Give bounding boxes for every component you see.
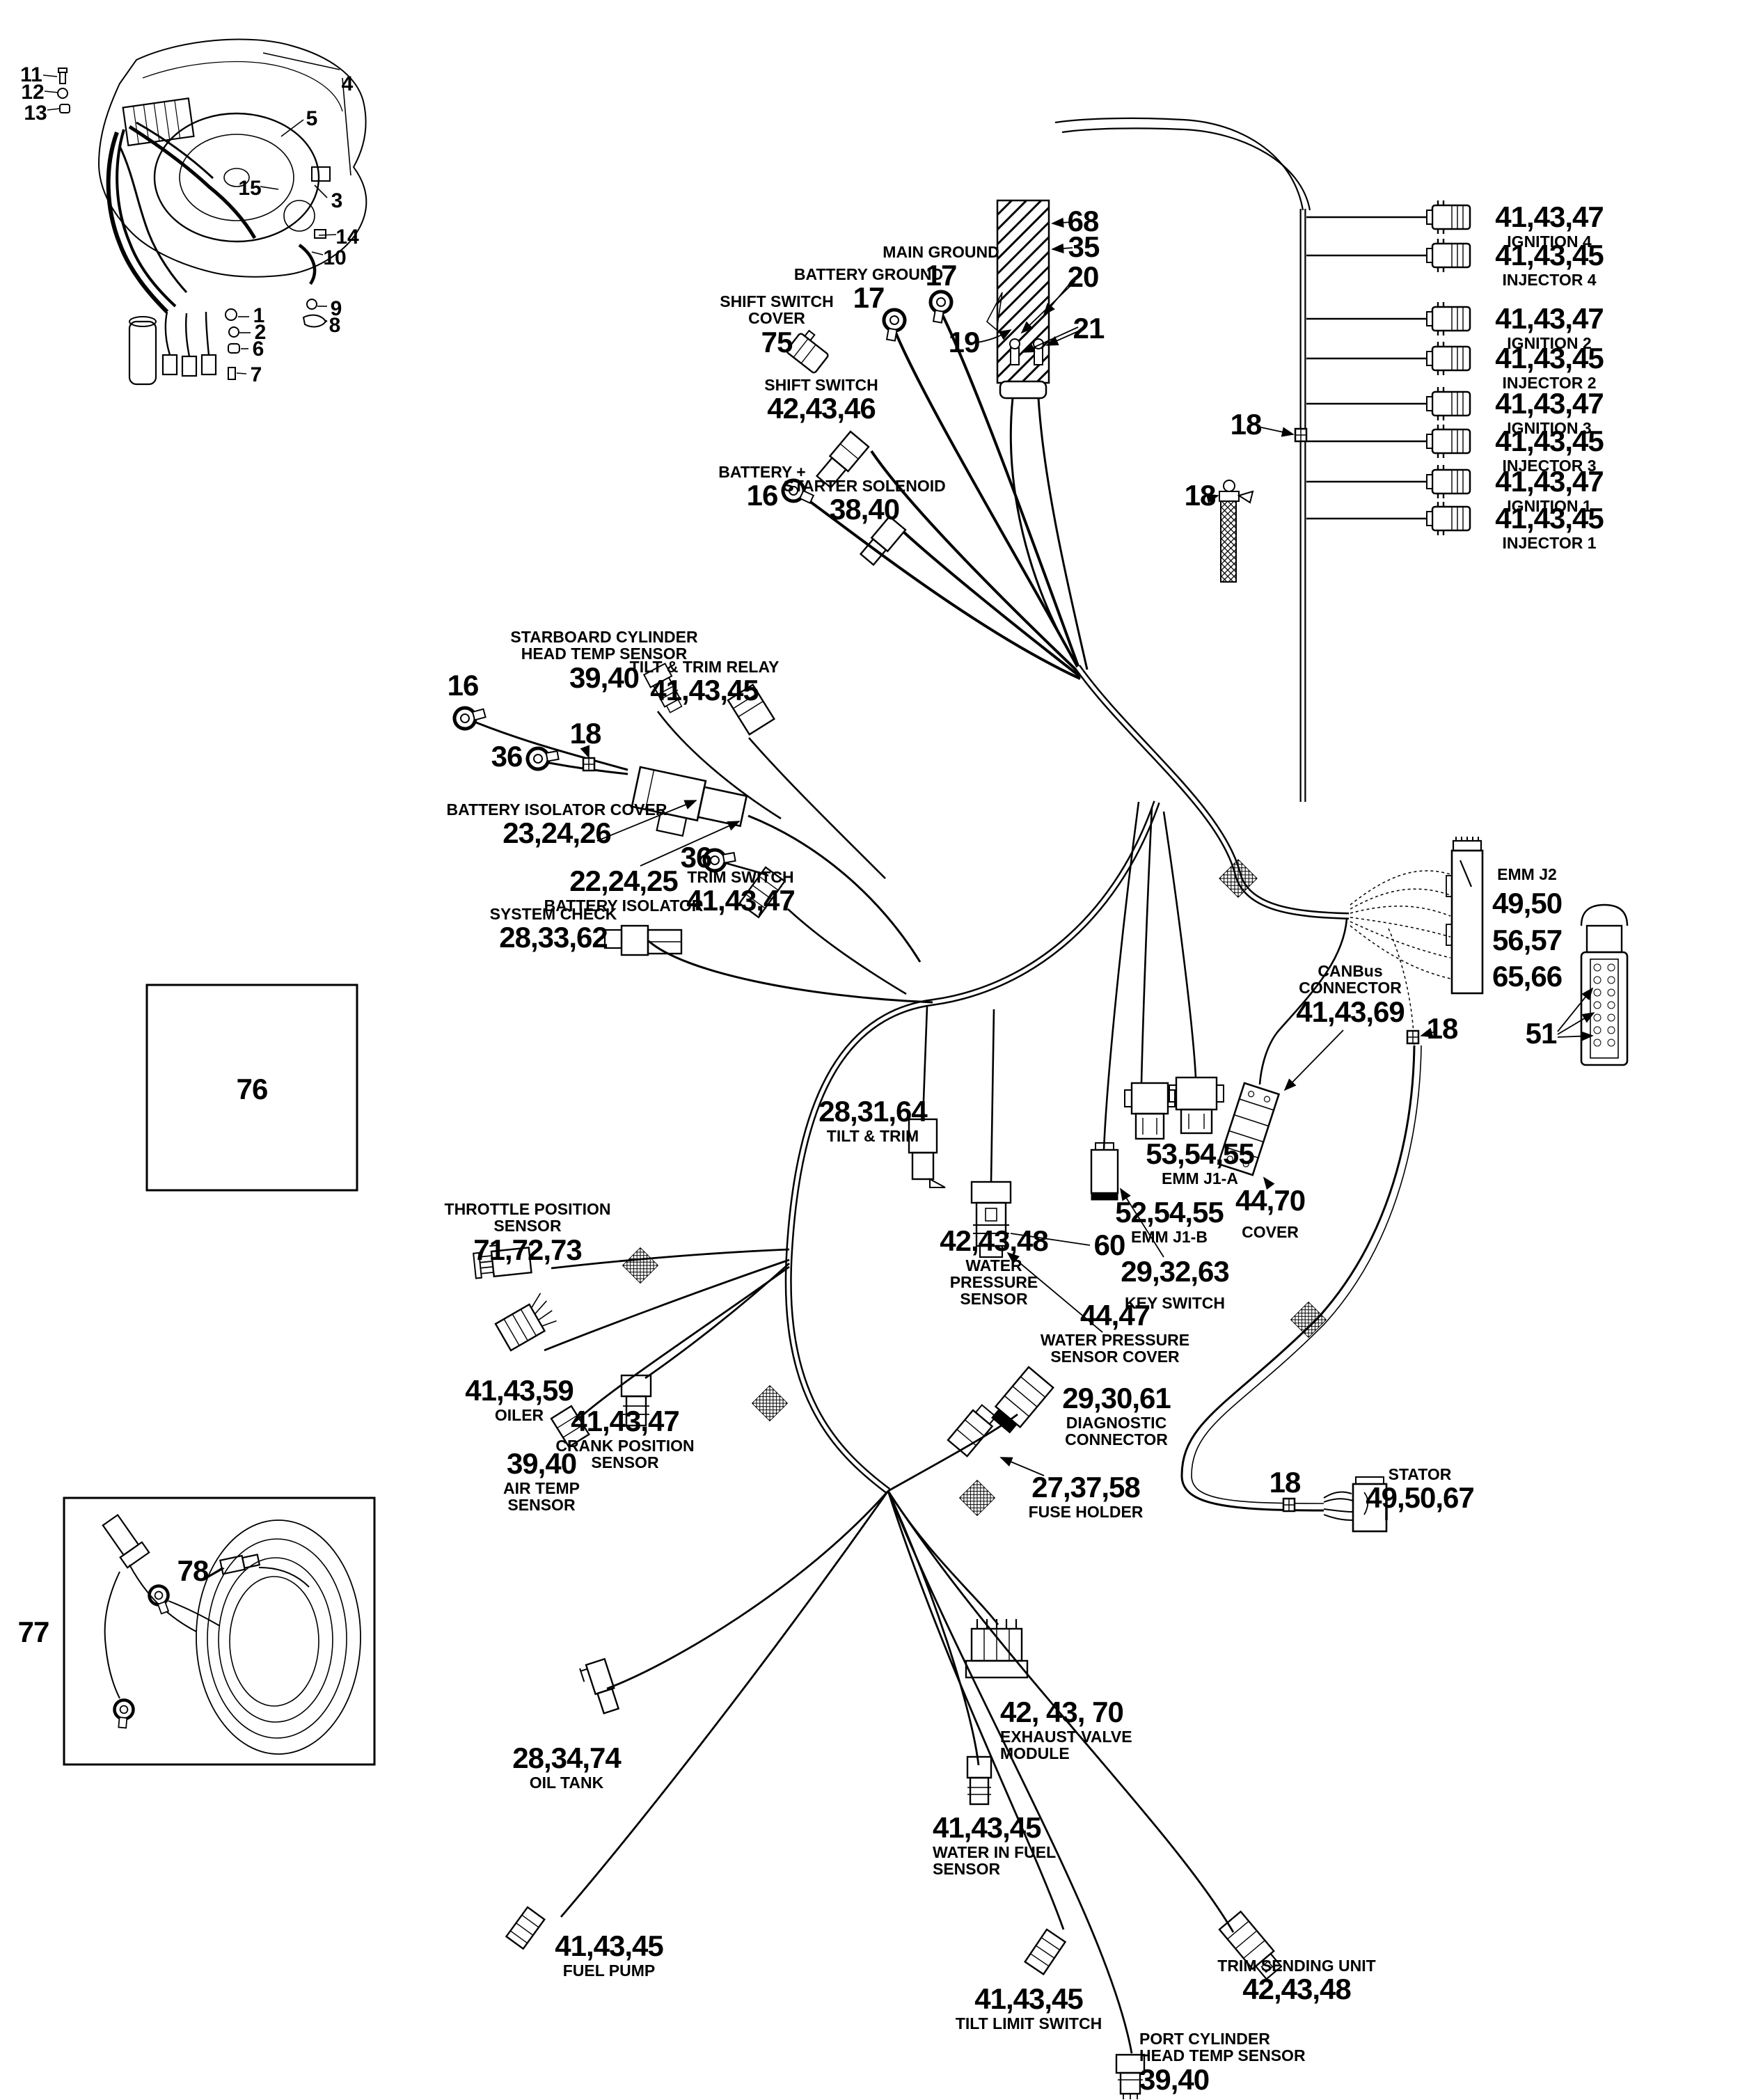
label-stator: STATOR 49,50,67 (1366, 1466, 1474, 1514)
label-exhaust-valve-module: 42, 43, 70 EXHAUST VALVE MODULE (1000, 1697, 1132, 1762)
label-leaders (202, 800, 1594, 1580)
engine-assembly-icon (43, 39, 366, 384)
callout-18-ground: 18 (1185, 480, 1216, 512)
parts-diagram-page: 11 12 13 4 5 3 15 14 10 9 8 1 2 6 7 SHIF… (0, 0, 1740, 2100)
label-diagnostic-connector: 29,30,61 DIAGNOSTIC CONNECTOR (1062, 1383, 1171, 1448)
label-battery-isolator-cover: BATTERY ISOLATOR COVER 23,24,26 (447, 801, 667, 849)
callout-36-a: 36 (491, 741, 523, 773)
label-emm-j1b: 52,54,55 EMM J1-B (1115, 1197, 1224, 1245)
label-injector-1: 41,43,45INJECTOR 1 (1495, 503, 1604, 551)
label-water-pressure-cover: 44,47 WATER PRESSURE SENSOR COVER (1041, 1300, 1189, 1365)
label-tilt-trim-relay: TILT & TRIM RELAY 41,43,45 (630, 658, 780, 706)
label-system-check: SYSTEM CHECK 28,33,62 (490, 906, 617, 954)
label-injector-4: 41,43,45INJECTOR 4 (1495, 240, 1604, 288)
callout-8: 8 (329, 315, 341, 337)
callout-15: 15 (238, 177, 261, 200)
label-trim-switch: TRIM SWITCH 41,43,47 (686, 869, 795, 917)
label-main-ground: MAIN GROUND 17 (883, 244, 999, 292)
callout-18-emm: 18 (1427, 1013, 1458, 1045)
label-water-pressure-sensor: 42,43,48 WATER PRESSURE SENSOR (940, 1226, 1048, 1308)
callout-14: 14 (335, 226, 358, 248)
harness-coil-icon (64, 1498, 374, 1765)
label-trim-sending-unit: TRIM SENDING UNIT 42,43,48 (1217, 1957, 1375, 2005)
label-starter-solenoid: STARTER SOLENOID 38,40 (783, 477, 945, 526)
callout-3: 3 (331, 190, 343, 212)
label-tilt-limit-switch: 41,43,45 TILT LIMIT SWITCH (956, 1984, 1102, 2032)
label-canbus-connector: CANBus CONNECTOR 41,43,69 (1296, 963, 1405, 1027)
label-emm-j2: EMM J2 49,50 56,57 65,66 (1492, 866, 1562, 993)
callout-76: 76 (237, 1074, 268, 1105)
callout-19: 19 (949, 327, 980, 358)
label-fuel-pump: 41,43,45 FUEL PUMP (555, 1931, 663, 1979)
callout-77: 77 (18, 1617, 49, 1648)
callout-4: 4 (342, 73, 354, 95)
label-fuse-holder: 27,37,58 FUSE HOLDER (1029, 1472, 1144, 1520)
label-shift-switch: SHIFT SWITCH 42,43,46 (764, 377, 878, 425)
callout-5: 5 (306, 108, 318, 130)
label-oil-tank: 28,34,74 OIL TANK (512, 1743, 621, 1791)
callout-16-ring: 16 (448, 670, 479, 702)
callout-18-stator: 18 (1270, 1467, 1301, 1499)
label-water-in-fuel: 41,43,45 WATER IN FUEL SENSOR (933, 1813, 1056, 1877)
callout-10: 10 (323, 247, 346, 269)
callout-60: 60 (1094, 1230, 1125, 1261)
callout-13: 13 (24, 102, 47, 125)
label-injector-2: 41,43,45INJECTOR 2 (1495, 343, 1604, 391)
callout-51: 51 (1526, 1018, 1557, 1050)
label-tilt-trim: 28,31,64 TILT & TRIM (818, 1096, 927, 1144)
harness-wires (476, 118, 1450, 2053)
battery-cable-wrap-icon (987, 200, 1049, 398)
label-port-head-temp: PORT CYLINDER HEAD TEMP SENSOR 39,40 (1139, 2030, 1306, 2095)
callout-7: 7 (251, 364, 262, 386)
callout-18-isolator: 18 (570, 718, 601, 750)
callout-18-harness: 18 (1231, 409, 1262, 441)
callout-21: 21 (1073, 313, 1105, 345)
callout-35: 35 (1068, 232, 1100, 263)
label-throttle-position: THROTTLE POSITION SENSOR 71,72,73 (445, 1201, 611, 1265)
label-emm-j1a: 53,54,55 EMM J1-A (1146, 1139, 1254, 1187)
label-canbus-cover: 44,70 COVER (1235, 1185, 1305, 1240)
callout-6: 6 (253, 338, 264, 361)
label-air-temp: 39,40 AIR TEMP SENSOR (503, 1448, 580, 1513)
callout-12: 12 (21, 81, 44, 104)
callout-20: 20 (1068, 262, 1099, 293)
callout-78: 78 (177, 1556, 209, 1587)
